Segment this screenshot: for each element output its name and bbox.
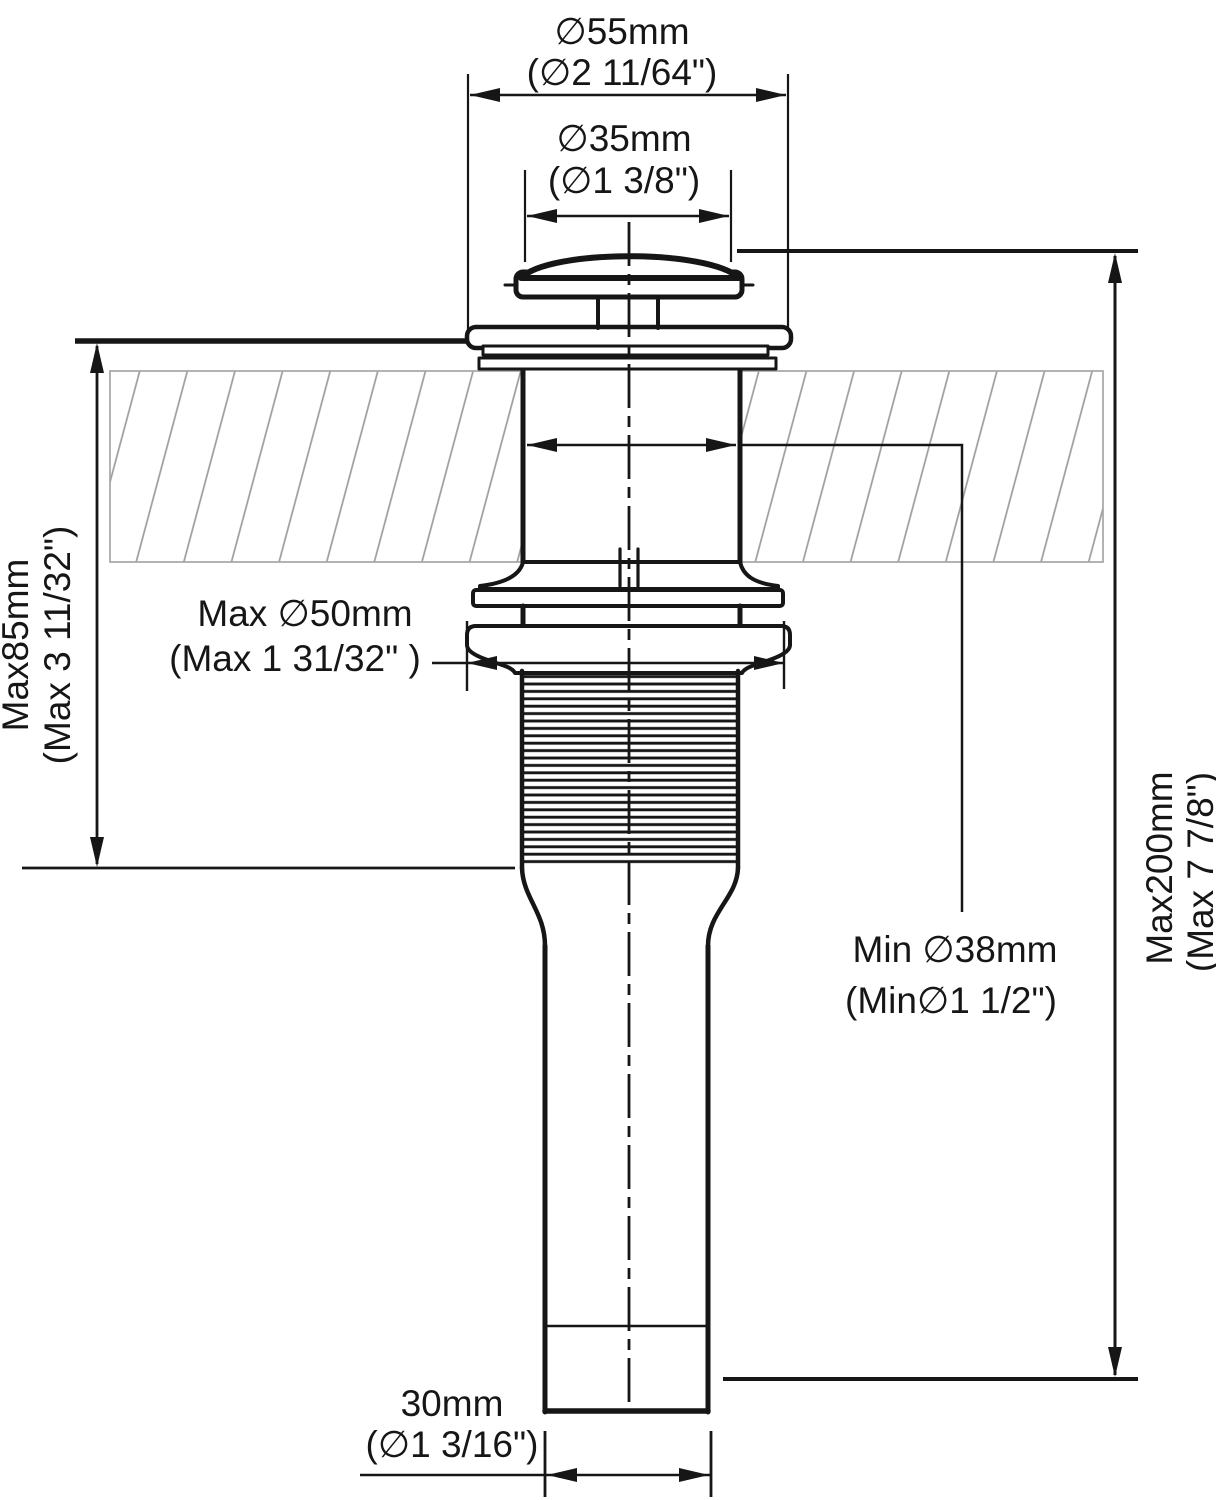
- min-hole-label-imperial: (Min∅1 1/2"): [845, 980, 1057, 1021]
- max-hole-label-imperial: (Max 1 31/32" ): [169, 638, 421, 679]
- cap-diameter-label-metric: ∅55mm: [554, 11, 689, 52]
- lower-washer: [479, 358, 776, 369]
- cap-diameter-label-imperial: (∅2 11/64"): [527, 52, 718, 93]
- upper-washer: [483, 346, 768, 355]
- deck-thickness-label-metric: Max85mm: [0, 559, 36, 732]
- countertop-left-slab: [110, 371, 522, 562]
- countertop-right-slab: [741, 371, 1103, 562]
- deck-thickness-label-imperial: (Max 3 11/32"): [37, 526, 78, 765]
- drain-dimension-diagram: ∅55mm (∅2 11/64") ∅35mm (∅1 3/8") Max85m…: [0, 0, 1216, 1500]
- technical-drawing-canvas: ∅55mm (∅2 11/64") ∅35mm (∅1 3/8") Max85m…: [0, 0, 1216, 1500]
- min-hole-label-metric: Min ∅38mm: [853, 929, 1058, 970]
- top-opening-label-imperial: (∅1 3/8"): [548, 160, 700, 201]
- top-opening-label-metric: ∅35mm: [556, 118, 691, 159]
- tailpiece-label-imperial: (∅1 3/16"): [366, 1424, 539, 1465]
- total-height-label-metric: Max200mm: [1139, 771, 1180, 964]
- total-height-label-imperial: (Max 7 7/8"): [1180, 772, 1216, 972]
- max-hole-label-metric: Max ∅50mm: [197, 593, 412, 634]
- tailpiece-label-metric: 30mm: [401, 1383, 504, 1424]
